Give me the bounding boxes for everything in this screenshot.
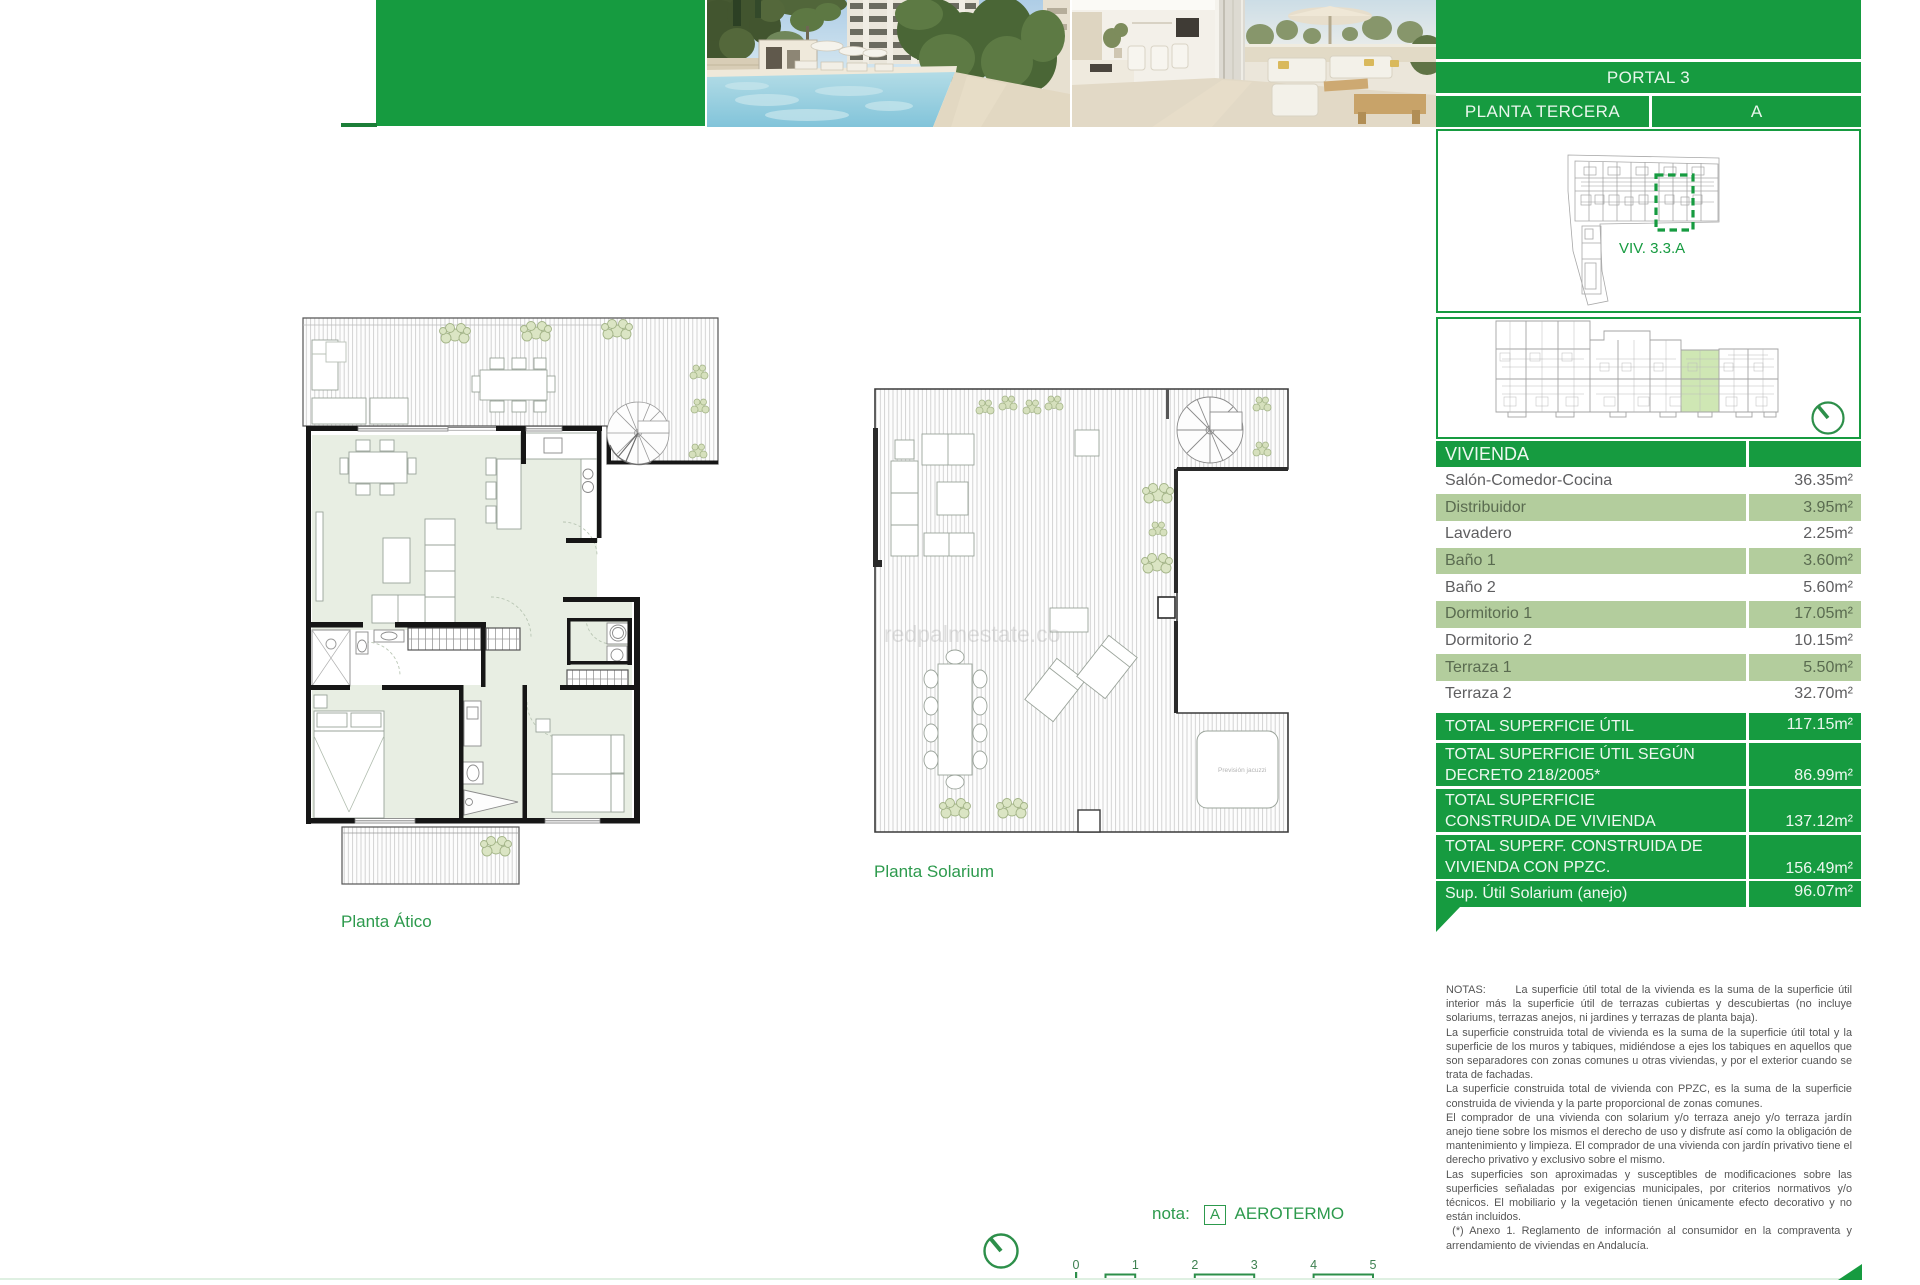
svg-text:2: 2 [1191,1258,1198,1272]
svg-text:1: 1 [1132,1258,1139,1272]
svg-text:redpalmestate.co: redpalmestate.co [884,621,1060,647]
svg-text:0: 0 [1073,1258,1080,1272]
svg-text:3: 3 [1251,1258,1258,1272]
svg-text:VIV. 3.3.A: VIV. 3.3.A [1619,240,1685,257]
svg-text:5: 5 [1370,1258,1377,1272]
svg-text:Previsión jacuzzi: Previsión jacuzzi [1218,767,1266,774]
svg-text:4: 4 [1310,1258,1317,1272]
